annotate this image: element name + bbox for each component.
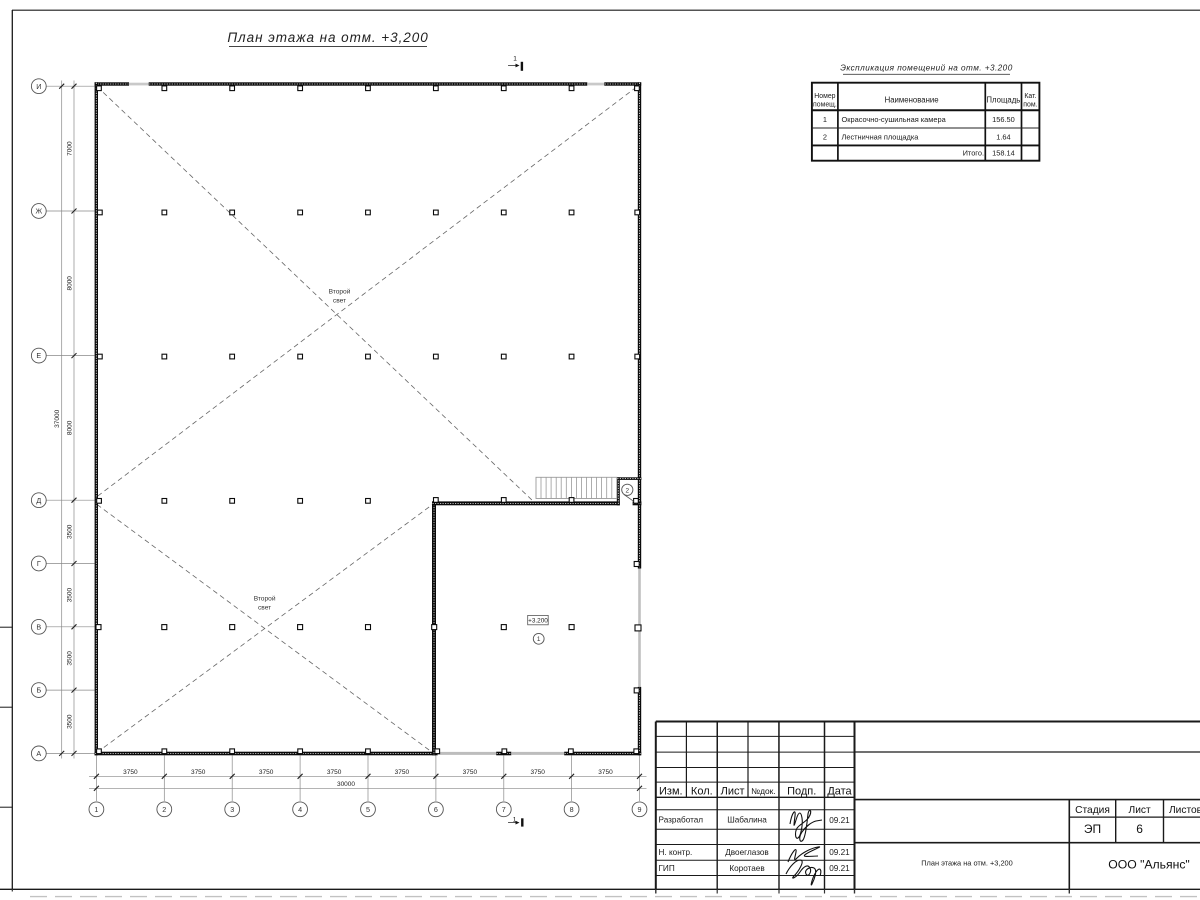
svg-text:пом.: пом.	[1023, 102, 1037, 109]
svg-text:Д: Д	[36, 496, 41, 505]
svg-text:3750: 3750	[327, 769, 342, 776]
svg-text:3750: 3750	[598, 769, 613, 776]
svg-text:Дата: Дата	[827, 785, 852, 797]
svg-text:Лист: Лист	[721, 785, 745, 797]
svg-text:План этажа на отм. +3,200: План этажа на отм. +3,200	[227, 30, 428, 45]
svg-text:6: 6	[434, 805, 438, 814]
svg-text:Разработал: Разработал	[659, 816, 704, 825]
svg-text:158.14: 158.14	[992, 149, 1015, 158]
svg-text:+3.200: +3.200	[528, 617, 548, 624]
svg-text:Стадия: Стадия	[1075, 805, 1110, 816]
svg-text:3750: 3750	[259, 769, 274, 776]
svg-text:1: 1	[513, 56, 517, 63]
svg-text:156.50: 156.50	[992, 115, 1015, 124]
svg-text:№док.: №док.	[751, 786, 776, 796]
svg-text:Лестничная площадка: Лестничная площадка	[842, 132, 920, 141]
svg-text:Е: Е	[36, 351, 41, 360]
svg-text:8000: 8000	[67, 276, 74, 291]
svg-text:Окрасочно-сушильная камера: Окрасочно-сушильная камера	[842, 115, 947, 124]
svg-text:Кол.: Кол.	[691, 785, 713, 797]
svg-text:1: 1	[823, 115, 827, 124]
svg-text:3750: 3750	[191, 769, 206, 776]
svg-text:1: 1	[94, 805, 98, 814]
svg-text:свет: свет	[258, 604, 271, 611]
svg-text:09.21: 09.21	[829, 848, 850, 857]
svg-text:Листов: Листов	[1169, 805, 1200, 816]
svg-text:5: 5	[366, 805, 370, 814]
svg-text:Номер: Номер	[814, 93, 835, 100]
svg-text:3500: 3500	[67, 714, 74, 729]
svg-text:8: 8	[570, 805, 574, 814]
svg-text:Подп.: Подп.	[787, 785, 816, 797]
svg-text:Второй: Второй	[329, 288, 351, 296]
svg-text:свет: свет	[333, 298, 346, 305]
svg-text:Н. контр.: Н. контр.	[659, 848, 693, 857]
svg-text:1.64: 1.64	[996, 132, 1010, 141]
svg-text:4: 4	[298, 805, 302, 814]
svg-text:30000: 30000	[337, 781, 355, 788]
svg-text:09.21: 09.21	[829, 816, 850, 825]
svg-text:Коротаев: Коротаев	[729, 864, 764, 873]
svg-text:Кат.: Кат.	[1024, 93, 1036, 100]
svg-text:Второй: Второй	[254, 594, 276, 602]
svg-text:3750: 3750	[463, 769, 478, 776]
svg-text:Изм.: Изм.	[659, 785, 683, 797]
svg-text:ЭП: ЭП	[1084, 822, 1101, 836]
svg-text:Г: Г	[37, 559, 41, 568]
svg-text:И: И	[36, 82, 41, 91]
svg-text:помещ.: помещ.	[813, 102, 837, 109]
svg-text:9: 9	[638, 805, 642, 814]
svg-text:ООО "Альянс": ООО "Альянс"	[1108, 857, 1190, 871]
svg-text:Б: Б	[36, 686, 41, 695]
svg-text:3750: 3750	[123, 769, 138, 776]
svg-text:2: 2	[626, 487, 630, 494]
svg-text:3: 3	[230, 805, 234, 814]
svg-text:2: 2	[162, 805, 166, 814]
svg-text:ГИП: ГИП	[659, 864, 675, 873]
svg-text:Итого.: Итого.	[963, 149, 984, 158]
svg-text:Наименование: Наименование	[885, 96, 939, 105]
svg-text:37000: 37000	[54, 409, 61, 427]
svg-text:А: А	[36, 749, 41, 758]
svg-text:Ж: Ж	[35, 207, 42, 216]
svg-text:3500: 3500	[67, 651, 74, 666]
svg-text:3750: 3750	[395, 769, 410, 776]
svg-text:В: В	[36, 622, 41, 631]
svg-text:8000: 8000	[67, 420, 74, 435]
svg-text:3500: 3500	[67, 524, 74, 539]
svg-text:6: 6	[1136, 822, 1143, 836]
svg-text:2: 2	[823, 132, 827, 141]
svg-text:Лист: Лист	[1129, 805, 1151, 816]
svg-text:7: 7	[502, 805, 506, 814]
svg-text:7000: 7000	[67, 141, 74, 156]
svg-text:Двоеглазов: Двоеглазов	[725, 848, 769, 857]
svg-text:Шабалина: Шабалина	[727, 816, 767, 825]
svg-text:План этажа на отм. +3,200: План этажа на отм. +3,200	[921, 859, 1013, 868]
svg-text:3500: 3500	[67, 587, 74, 602]
svg-text:09.21: 09.21	[829, 864, 850, 873]
svg-text:1: 1	[537, 636, 541, 643]
svg-text:Площадь: Площадь	[986, 96, 1020, 105]
svg-text:3750: 3750	[530, 769, 545, 776]
svg-text:Экспликация помещений на отм.: Экспликация помещений на отм. +3.200	[840, 64, 1012, 73]
